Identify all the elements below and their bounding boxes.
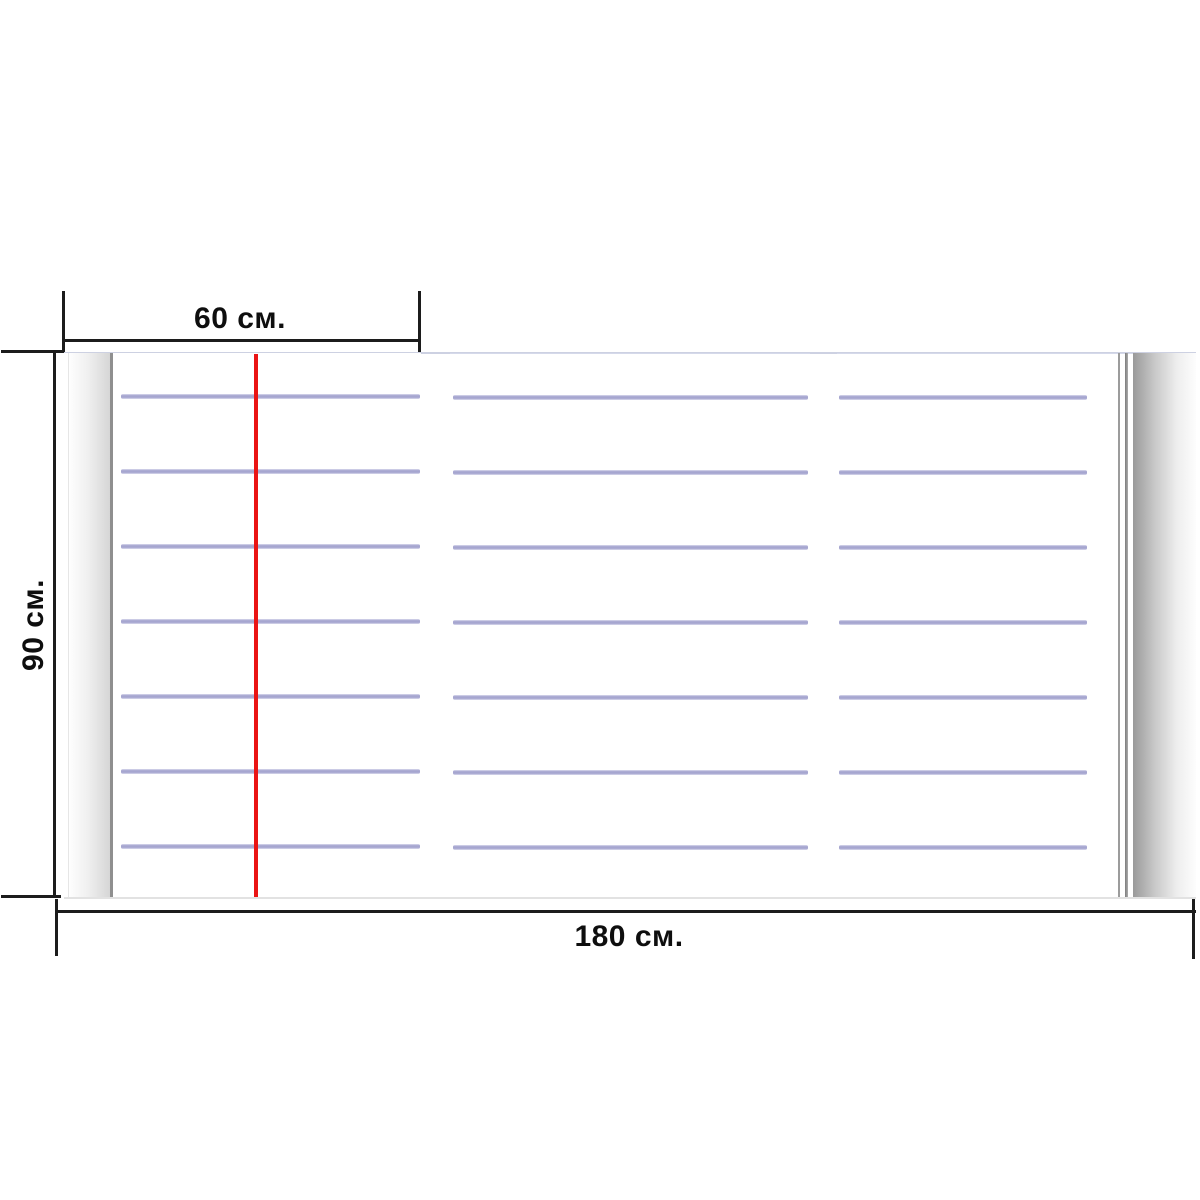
ruled-line [453,620,808,625]
ruled-line [121,769,420,774]
ruled-line [121,844,420,849]
top-dimension-label: 60 см. [140,302,340,336]
page-curl-left [68,353,113,898]
ruled-line [839,695,1087,700]
ruled-line [839,620,1087,625]
ruled-line [453,545,808,550]
bottom-dimension-line [56,910,1196,913]
ruled-line [453,770,808,775]
ruled-line [839,770,1087,775]
top-dimension-line [63,339,421,342]
ruled-line [839,470,1087,475]
sheet-panel-2 [450,353,810,898]
bottom-dimension-tick-left [55,899,58,956]
board-bottom-edge [64,897,1196,899]
left-dimension-tick-top [1,350,64,353]
ruled-line [453,845,808,850]
ruled-line [121,469,420,474]
page-curl-right [1133,353,1196,898]
ruled-line [121,694,420,699]
left-dimension-tick-bottom [1,895,61,898]
ruled-lines-panel-3 [839,354,1087,898]
bottom-dimension-tick-right [1192,899,1195,959]
ruled-line [121,619,420,624]
ruled-line [839,845,1087,850]
page-edge-line-2 [1125,353,1128,898]
ruled-line [453,695,808,700]
ruled-lines-panel-1 [121,353,420,898]
notebook-board [64,352,1196,899]
ruled-line [839,545,1087,550]
diagram-canvas: 60 см. 90 см. 180 см. [0,0,1200,1200]
ruled-line [453,395,808,400]
ruled-line [121,394,420,399]
top-dimension-tick-right [418,291,421,352]
ruled-line [121,544,420,549]
top-dimension-tick-left [62,291,65,352]
ruled-line [839,395,1087,400]
bottom-dimension-label: 180 см. [529,920,729,954]
page-edge-line-1 [1118,353,1120,898]
red-margin-line [254,354,258,897]
left-dimension-label: 90 см. [14,550,54,700]
ruled-line [453,470,808,475]
sheet-panel-1 [64,353,421,898]
ruled-lines-panel-2 [453,354,808,898]
